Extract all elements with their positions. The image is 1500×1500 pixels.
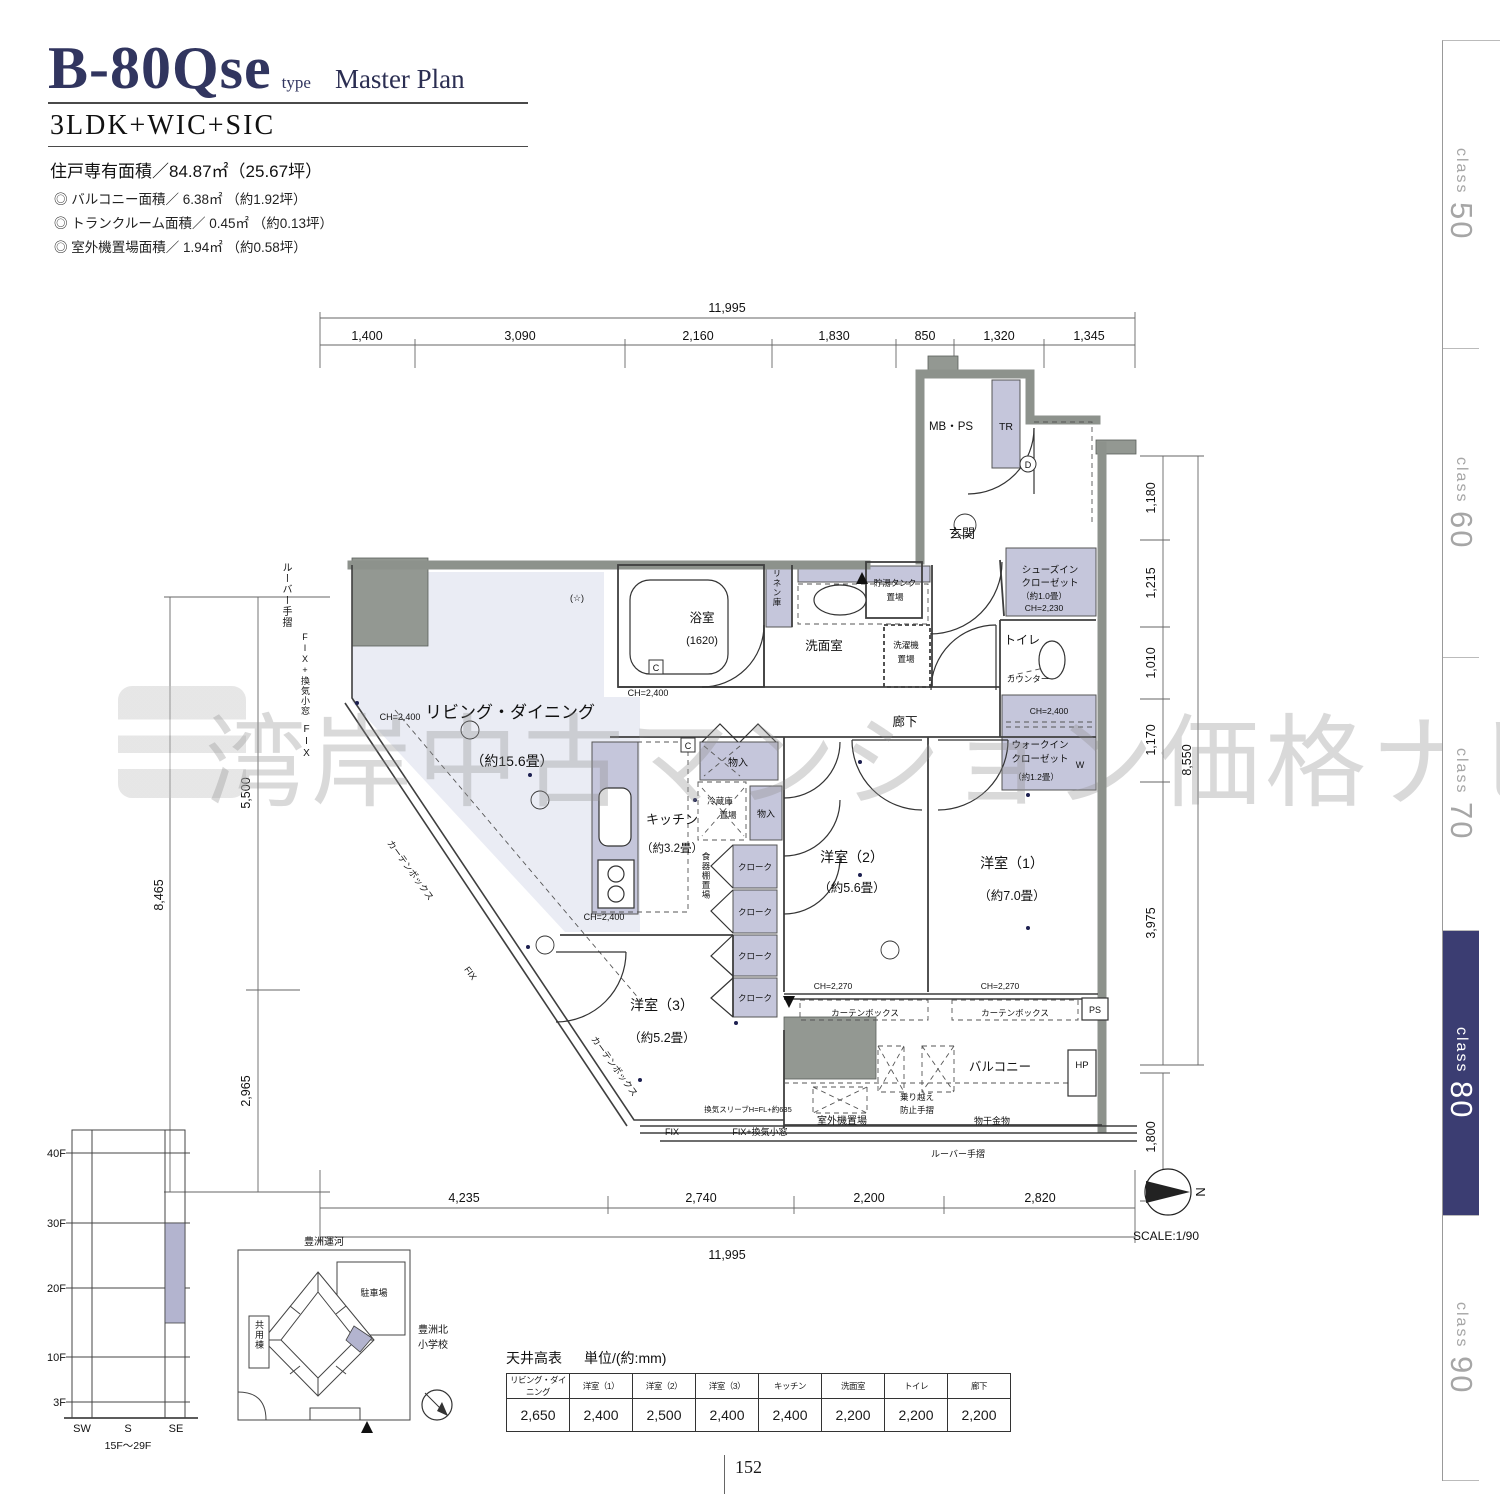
svg-text:（約1.0畳）: （約1.0畳）: [1021, 591, 1067, 601]
svg-text:置場: 置場: [897, 654, 915, 664]
svg-text:SE: SE: [169, 1423, 184, 1435]
svg-text:30F: 30F: [47, 1218, 66, 1230]
area-trunk: ◎ トランクルーム面積／ 0.45㎡ （約0.13坪）: [54, 212, 528, 232]
svg-text:カーテンボックス: カーテンボックス: [831, 1008, 899, 1018]
svg-text:2,160: 2,160: [682, 329, 713, 343]
svg-text:S: S: [124, 1423, 131, 1435]
tab-class-60[interactable]: class60: [1443, 349, 1479, 658]
header: B-80Qse type Master Plan 3LDK+WIC+SIC 住戸…: [48, 38, 528, 256]
svg-text:D: D: [1025, 460, 1032, 470]
svg-text:CH=2,270: CH=2,270: [981, 981, 1020, 991]
svg-text:カーテンボックス: カーテンボックス: [981, 1008, 1049, 1018]
elevation-highlight: [165, 1223, 185, 1323]
svg-text:シューズイン: シューズイン: [1022, 564, 1079, 576]
svg-text:CH=2,400: CH=2,400: [380, 712, 421, 722]
svg-text:カーテンボックス: カーテンボックス: [385, 838, 435, 902]
svg-text:駐車場: 駐車場: [360, 1287, 387, 1298]
svg-text:N: N: [1193, 1187, 1208, 1196]
svg-text:1,170: 1,170: [1144, 724, 1158, 755]
svg-text:FIX: FIX: [665, 1127, 679, 1137]
svg-text:SCALE:1/90: SCALE:1/90: [1133, 1229, 1199, 1243]
svg-text:W: W: [1076, 760, 1085, 770]
svg-text:1,180: 1,180: [1144, 482, 1158, 513]
ceiling-table-header-row: リビング・ダイニング洋室（1） 洋室（2）洋室（3） キッチン洗面室 トイレ廊下: [507, 1374, 1011, 1399]
svg-text:洗濯機: 洗濯機: [893, 640, 919, 650]
svg-text:11,995: 11,995: [708, 301, 745, 315]
svg-text:PS: PS: [1089, 1005, 1101, 1015]
svg-text:3,975: 3,975: [1144, 907, 1158, 938]
svg-text:洋室（2）: 洋室（2）: [820, 849, 884, 865]
svg-text:CH=2,400: CH=2,400: [1030, 706, 1069, 716]
elevation-labels: 40F 30F 20F 10F 3F SW S SE 15F〜29F: [47, 1148, 183, 1452]
svg-text:FIX+換気小窓: FIX+換気小窓: [732, 1126, 787, 1137]
svg-text:物入: 物入: [757, 808, 775, 819]
svg-text:置場: 置場: [719, 810, 737, 820]
svg-text:クローク: クローク: [738, 993, 772, 1003]
svg-text:乗り越え: 乗り越え: [900, 1092, 934, 1102]
svg-text:（約7.0畳）: （約7.0畳）: [978, 888, 1045, 903]
svg-text:冷蔵庫: 冷蔵庫: [707, 796, 733, 806]
svg-text:トイレ: トイレ: [1004, 633, 1040, 647]
svg-text:HP: HP: [1075, 1060, 1088, 1071]
svg-text:小学校: 小学校: [418, 1338, 448, 1351]
svg-text:8,465: 8,465: [152, 879, 166, 910]
page: 11,995 1,400 3,090 2,160 1,830 850 1,320…: [0, 0, 1500, 1500]
svg-text:物入: 物入: [728, 756, 748, 769]
plan-type-suffix: type: [282, 73, 311, 93]
svg-text:浴室: 浴室: [689, 610, 714, 625]
svg-text:4,235: 4,235: [448, 1191, 479, 1205]
layout-label: 3LDK+WIC+SIC: [48, 104, 528, 147]
dim-text-bottom: 4,235 2,740 2,200 2,820 11,995: [448, 1191, 1055, 1262]
ceiling-table-value-row: 2,6502,400 2,5002,400 2,4002,200 2,2002,…: [507, 1399, 1011, 1432]
title-row: B-80Qse type Master Plan: [48, 38, 528, 104]
svg-text:換気スリーブH=FL+約635: 換気スリーブH=FL+約635: [704, 1104, 792, 1114]
svg-text:ルーバー手摺: ルーバー手摺: [931, 1148, 985, 1159]
dim-text-top: 11,995 1,400 3,090 2,160 1,830 850 1,320…: [351, 301, 1104, 343]
svg-text:貯湯タンク: 貯湯タンク: [874, 578, 917, 588]
svg-text:クローゼット: クローゼット: [1011, 753, 1068, 765]
svg-text:1,800: 1,800: [1144, 1121, 1158, 1152]
svg-text:1,345: 1,345: [1073, 329, 1104, 343]
svg-text:キッチン: キッチン: [646, 812, 698, 827]
svg-text:（約1.2畳）: （約1.2畳）: [1013, 772, 1059, 782]
north-arrow: N SCALE:1/90: [1133, 1169, 1208, 1243]
svg-text:40F: 40F: [47, 1148, 66, 1160]
svg-text:クローク: クローク: [738, 951, 772, 961]
svg-text:8,550: 8,550: [1180, 744, 1194, 775]
area-outdoor-unit: ◎ 室外機置場面積／ 1.94㎡ （約0.58坪）: [54, 236, 528, 256]
svg-text:C: C: [653, 663, 660, 673]
svg-text:防止手摺: 防止手摺: [900, 1105, 934, 1115]
page-number: 152: [724, 1455, 762, 1494]
svg-text:洋室（3）: 洋室（3）: [630, 997, 694, 1013]
svg-text:玄関: 玄関: [949, 526, 975, 541]
svg-text:バルコニー: バルコニー: [969, 1060, 1031, 1074]
svg-text:洗面室: 洗面室: [805, 638, 843, 653]
svg-text:（約5.6畳）: （約5.6畳）: [818, 880, 885, 895]
svg-text:SW: SW: [73, 1423, 91, 1435]
plan-code: B-80Qse: [48, 38, 272, 98]
svg-text:（約15.6畳）: （約15.6畳）: [470, 753, 553, 769]
svg-text:クローゼット: クローゼット: [1021, 577, 1078, 589]
svg-text:2,965: 2,965: [239, 1075, 253, 1106]
svg-text:豊洲北: 豊洲北: [418, 1323, 448, 1336]
site-map: [238, 1250, 410, 1420]
svg-text:10F: 10F: [47, 1352, 66, 1364]
svg-text:洋室（1）: 洋室（1）: [980, 855, 1044, 871]
svg-text:クローク: クローク: [738, 907, 772, 917]
site-entry-marker: [361, 1421, 373, 1433]
svg-text:2,740: 2,740: [685, 1191, 716, 1205]
svg-text:850: 850: [915, 329, 936, 343]
area-main: 住戸専有面積／84.87㎡（25.67坪）: [50, 157, 528, 182]
svg-text:15F〜29F: 15F〜29F: [105, 1440, 152, 1452]
svg-text:1,215: 1,215: [1144, 567, 1158, 598]
svg-text:1,010: 1,010: [1144, 647, 1158, 678]
svg-text:5,500: 5,500: [239, 777, 253, 808]
svg-text:（約3.2畳）: （約3.2畳）: [641, 841, 703, 855]
storage-fills: [592, 380, 1096, 1017]
svg-text:3,090: 3,090: [504, 329, 535, 343]
svg-text:CH=2,230: CH=2,230: [1025, 603, 1064, 613]
svg-text:クローク: クローク: [738, 862, 772, 872]
svg-text:MB・PS: MB・PS: [929, 421, 973, 433]
svg-text:FIX: FIX: [462, 965, 478, 982]
svg-text:廊下: 廊下: [892, 714, 917, 729]
svg-text:ウォークイン: ウォークイン: [1011, 740, 1068, 751]
markers: [783, 572, 868, 1008]
dim-text-right: 1,180 1,215 1,010 1,170 3,975 8,550 1,80…: [1144, 482, 1194, 1152]
plan-label: Master Plan: [335, 64, 465, 95]
svg-text:TR: TR: [999, 421, 1013, 433]
svg-text:置場: 置場: [886, 592, 904, 602]
dim-text-left: 5,500 2,965 8,465: [152, 777, 253, 1106]
tab-class-80[interactable]: class80: [1443, 931, 1479, 1216]
svg-text:11,995: 11,995: [708, 1248, 745, 1262]
svg-text:(☆): (☆): [570, 593, 584, 603]
svg-text:CH=2,400: CH=2,400: [584, 912, 625, 922]
ceiling-height-table: 天井高表単位/(約:mm) リビング・ダイニング洋室（1） 洋室（2）洋室（3）…: [506, 1348, 1011, 1432]
svg-text:1,830: 1,830: [818, 329, 849, 343]
dim-lines-bottom: [320, 1170, 1135, 1243]
svg-text:20F: 20F: [47, 1283, 66, 1295]
svg-text:CH=2,270: CH=2,270: [814, 981, 853, 991]
svg-text:室外機置場: 室外機置場: [817, 1114, 867, 1127]
svg-text:物干金物: 物干金物: [974, 1115, 1010, 1126]
svg-text:CH=2,400: CH=2,400: [628, 688, 669, 698]
svg-text:2,820: 2,820: [1024, 1191, 1055, 1205]
svg-text:2,200: 2,200: [853, 1191, 884, 1205]
svg-text:リビング・ダイニング: リビング・ダイニング: [425, 703, 595, 722]
svg-text:1,400: 1,400: [351, 329, 382, 343]
tab-class-90[interactable]: class90: [1443, 1216, 1479, 1481]
tab-class-50[interactable]: class50: [1443, 41, 1479, 349]
svg-text:C: C: [685, 741, 692, 751]
svg-text:（約5.2畳）: （約5.2畳）: [628, 1030, 695, 1045]
svg-text:豊洲運河: 豊洲運河: [304, 1235, 344, 1248]
svg-text:1,320: 1,320: [983, 329, 1014, 343]
svg-text:(1620): (1620): [686, 635, 718, 647]
tab-class-70[interactable]: class70: [1443, 658, 1479, 931]
class-tab-bar: class50 class60 class70 class80 class90: [1442, 40, 1500, 1481]
svg-text:カウンター: カウンター: [1007, 674, 1050, 684]
site-compass: [422, 1390, 452, 1420]
ceiling-table-caption: 天井高表単位/(約:mm): [506, 1348, 1011, 1368]
area-balcony: ◎ バルコニー面積／ 6.38㎡ （約1.92坪）: [54, 188, 528, 208]
svg-text:3F: 3F: [53, 1397, 66, 1409]
